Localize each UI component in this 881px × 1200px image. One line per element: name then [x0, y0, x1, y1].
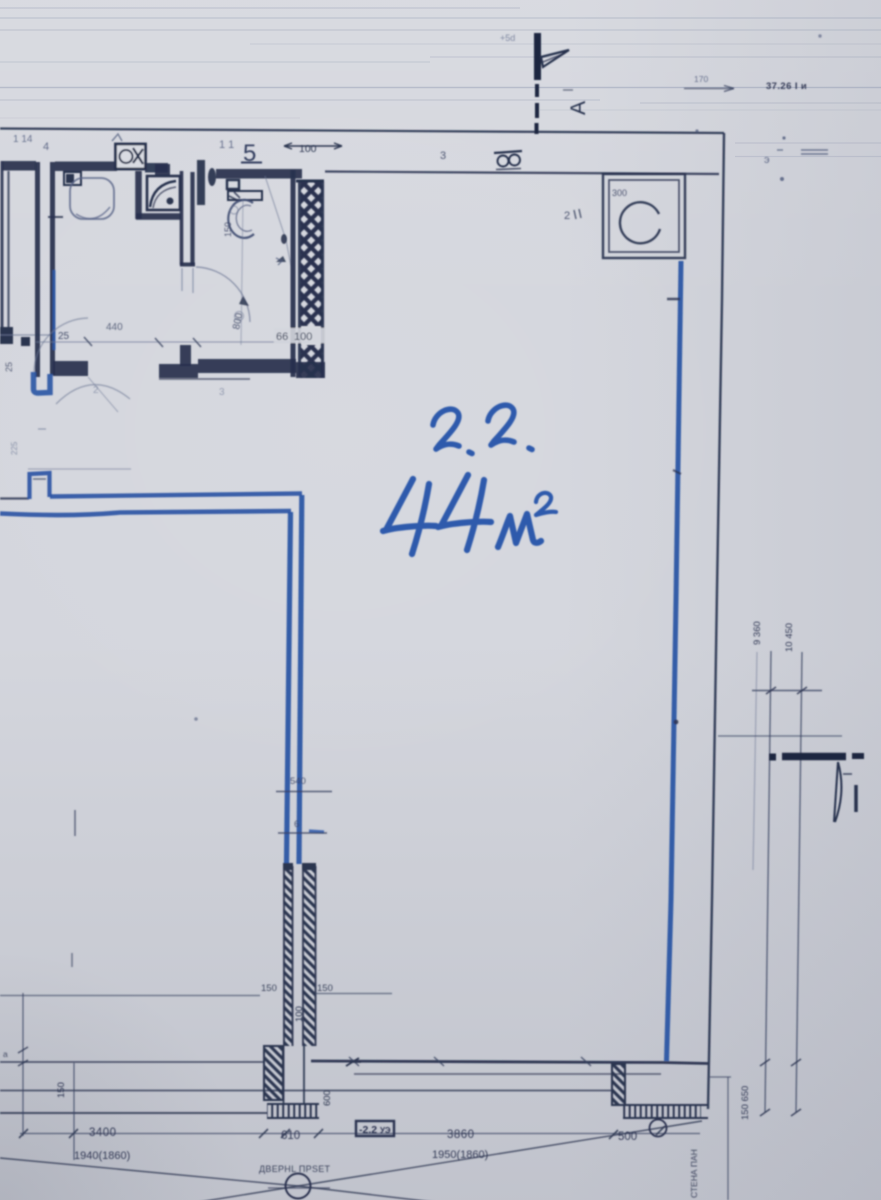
svg-text:ДВЕРНL ПРSЕТ: ДВЕРНL ПРSЕТ [259, 1164, 331, 1174]
svg-text:170: 170 [694, 74, 708, 84]
svg-text:СТЕНА ПАН: СТЕНА ПАН [689, 1149, 699, 1198]
svg-text:540: 540 [290, 776, 306, 787]
svg-text:150: 150 [261, 983, 277, 994]
svg-text:3: 3 [440, 150, 446, 162]
svg-text:66: 66 [276, 331, 288, 343]
svg-text:3400: 3400 [89, 1127, 117, 1139]
svg-text:100: 100 [294, 331, 312, 343]
svg-text:-2.2 УЭ: -2.2 УЭ [359, 1124, 391, 1136]
svg-text:9 360: 9 360 [752, 621, 763, 645]
svg-text:150: 150 [317, 983, 333, 994]
svg-text:а: а [3, 1049, 8, 1059]
svg-text:6: 6 [294, 819, 299, 830]
svg-text:3860: 3860 [447, 1129, 475, 1141]
svg-text:э: э [764, 154, 770, 166]
svg-text:A: A [567, 101, 590, 115]
svg-text:2: 2 [564, 210, 570, 222]
svg-text:610: 610 [281, 1130, 300, 1142]
svg-text:1 1: 1 1 [219, 139, 234, 151]
svg-text:150: 150 [56, 1082, 67, 1098]
svg-text:25: 25 [58, 331, 70, 342]
svg-text:37.26 I и: 37.26 I и [766, 81, 807, 92]
svg-text:1940(1860): 1940(1860) [74, 1150, 130, 1162]
svg-text:300: 300 [612, 188, 627, 198]
svg-text:25: 25 [4, 362, 14, 372]
svg-text:150 650: 150 650 [740, 1086, 751, 1120]
svg-text:3: 3 [219, 387, 225, 398]
svg-text:150: 150 [223, 222, 233, 237]
svg-text:1950(1860): 1950(1860) [432, 1149, 488, 1161]
svg-text:+5d: +5d [500, 33, 515, 43]
svg-text:1 14: 1 14 [13, 134, 33, 145]
svg-text:4: 4 [43, 141, 49, 153]
svg-text:2: 2 [93, 385, 99, 396]
svg-text:225: 225 [10, 441, 19, 455]
svg-text:440: 440 [106, 322, 123, 333]
svg-text:600: 600 [322, 1090, 333, 1106]
svg-text:100: 100 [299, 143, 317, 155]
svg-text:10 450: 10 450 [784, 623, 795, 652]
svg-text:100: 100 [294, 1006, 305, 1022]
